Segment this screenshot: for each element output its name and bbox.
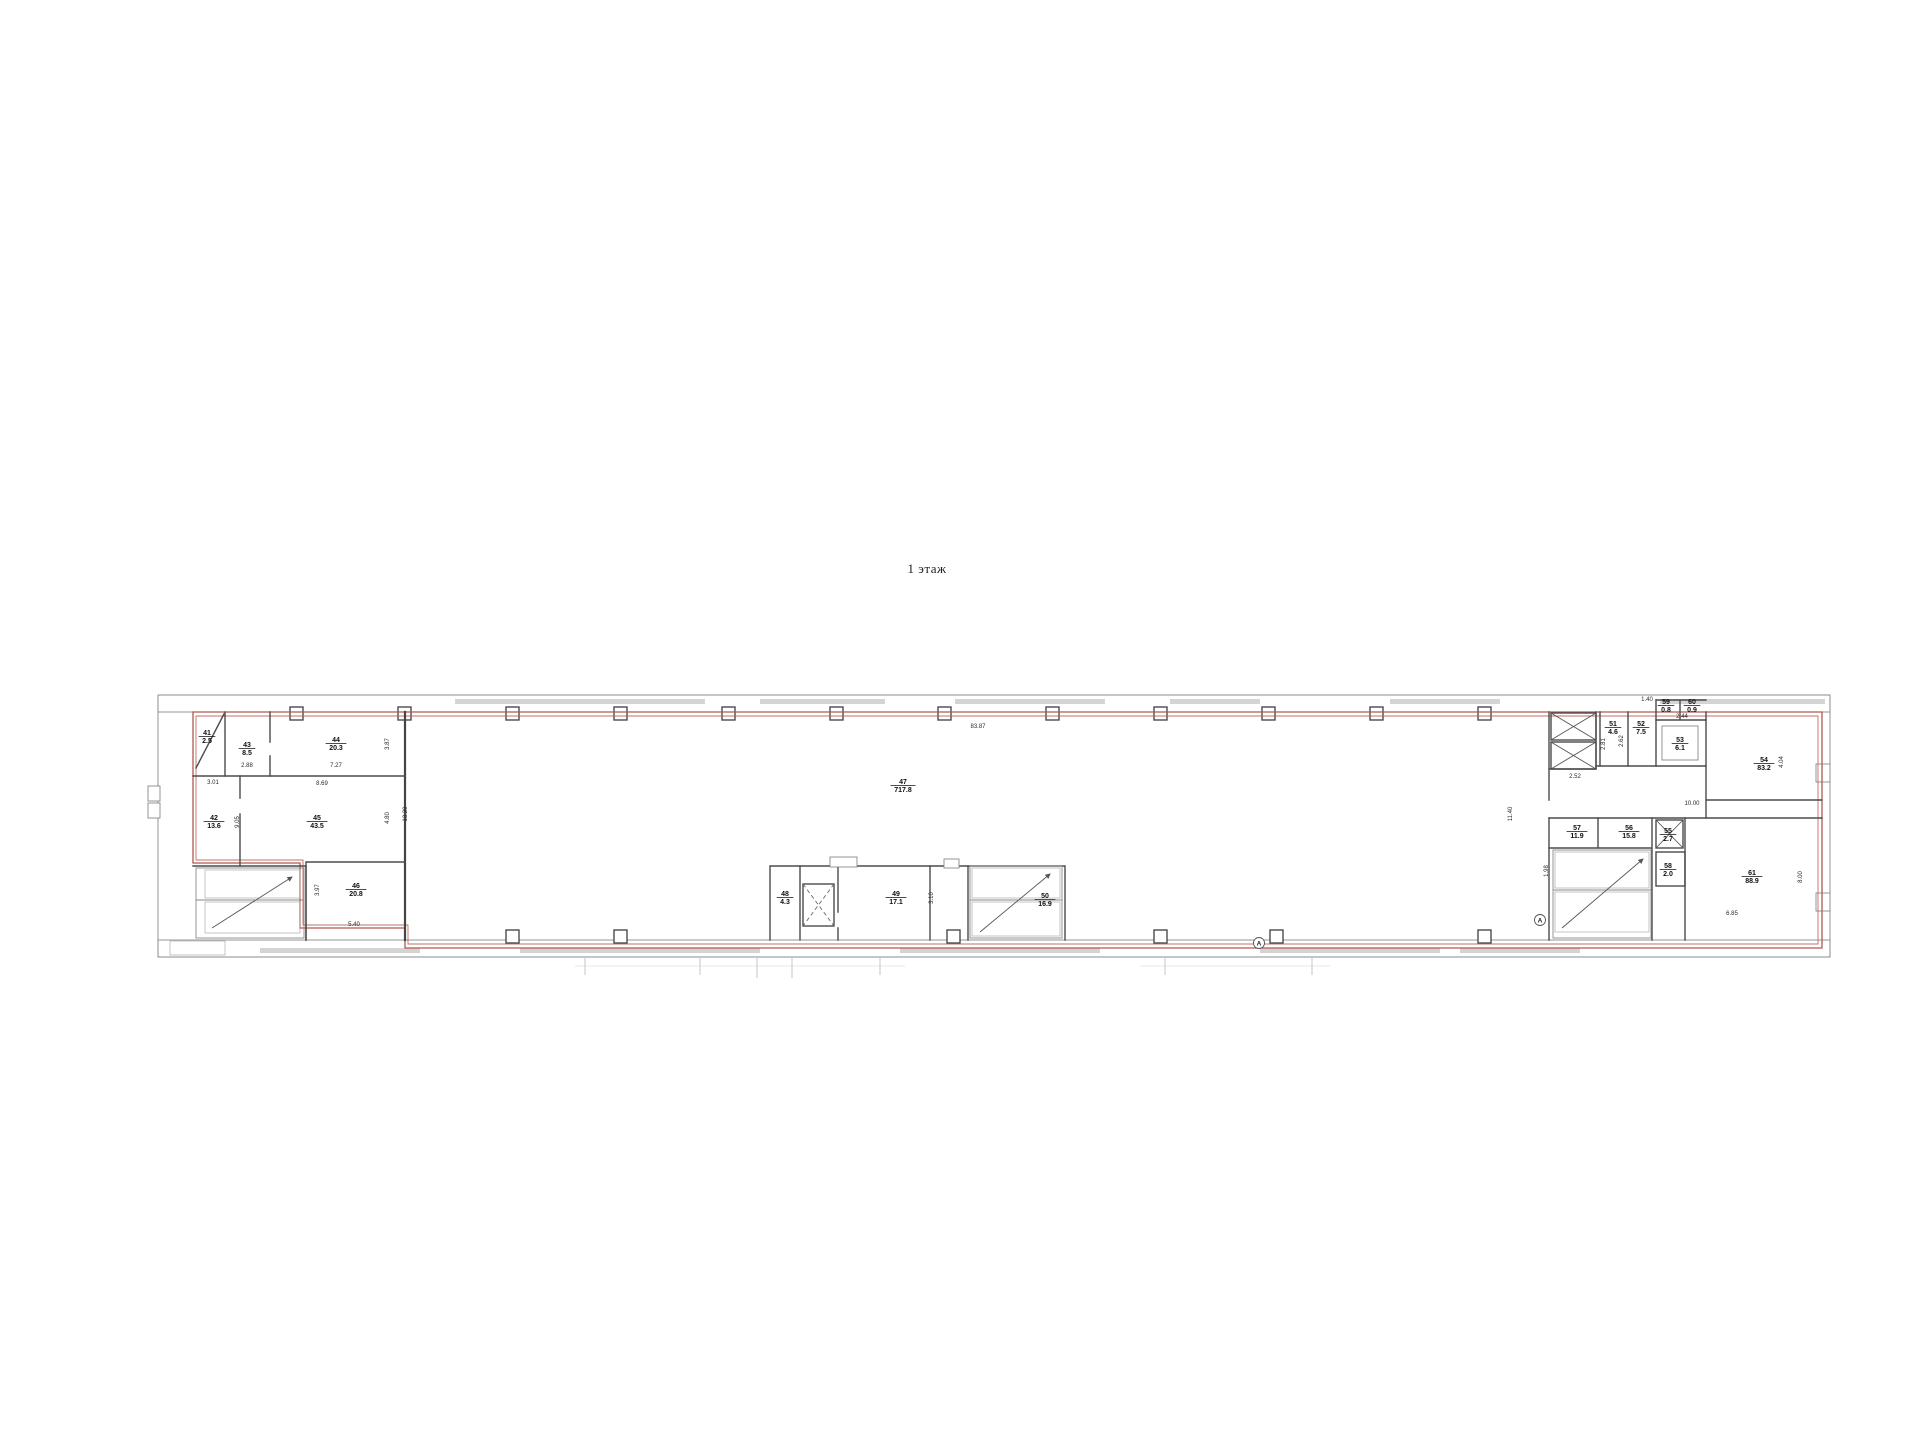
room-area: 0.8 [1661,707,1671,714]
dimension-label: 4.80 [385,812,391,824]
dimension-label: 3.87 [385,738,391,750]
left-section-walls [170,712,405,955]
room-label-50: 5016.9 [1035,893,1056,908]
room-number: 48 [781,891,789,898]
dimension-label: 2.88 [241,763,253,769]
room-label-52: 527.5 [1633,721,1650,736]
dimension-label: 11.40 [1508,806,1514,821]
dimension-label: 3.97 [315,884,321,896]
dimension-label: 6.85 [1726,911,1738,917]
axis-mark: А [1254,938,1265,949]
room-area: 13.6 [207,823,221,830]
room-label-53: 536.1 [1672,737,1689,752]
room-area: 2.7 [1663,836,1673,843]
room-area: 8.5 [242,750,252,757]
dimension-label: 7.27 [330,763,342,769]
room-number: 54 [1760,757,1768,764]
room-label-56: 5615.8 [1619,825,1640,840]
exterior-steps [170,941,225,955]
room-area: 20.8 [349,891,363,898]
dimension-label: 10.00 [1684,801,1700,807]
dimension-label: 2.62 [1619,735,1625,747]
window-strips [260,699,1825,953]
room-number: 41 [203,730,211,737]
room-number: 56 [1625,825,1633,832]
room-label-43: 438.5 [239,742,256,757]
dimension-label: 3.10 [929,892,935,904]
room-area: 16.9 [1038,901,1052,908]
room-label-49: 4917.1 [886,891,907,906]
labels-layer: 412.5438.54420.34213.64543.54620.847717.… [199,697,1804,949]
dimension-label: 3.01 [207,780,219,786]
room-number: 45 [313,815,321,822]
room-label-41: 412.5 [199,730,216,745]
room-number: 58 [1664,863,1672,870]
room-number: 57 [1573,825,1581,832]
room-number: 60 [1688,699,1696,706]
room-area: 717.8 [894,787,912,794]
drawing-page: 1 этаж [0,0,1920,1440]
room-number: 55 [1664,828,1672,835]
room-area: 7.5 [1636,729,1646,736]
room-area: 17.1 [889,899,903,906]
room-area: 4.6 [1608,729,1618,736]
room-area: 6.1 [1675,745,1685,752]
room-label-61: 6188.9 [1742,870,1763,885]
center-core-walls [770,857,1065,940]
stairs-left [196,868,304,938]
room-area: 20.3 [329,745,343,752]
room-area: 88.9 [1745,878,1759,885]
room-label-55: 552.7 [1660,828,1677,843]
room-number: 47 [899,779,907,786]
room-number: 46 [352,883,360,890]
room-label-54: 5483.2 [1754,757,1775,772]
room-area: 0.9 [1687,707,1697,714]
room-label-57: 5711.9 [1567,825,1588,840]
room-area: 43.5 [310,823,324,830]
dimension-label: 1.98 [1544,865,1550,877]
dimension-label: 83.87 [970,724,986,730]
room-number: 43 [243,742,251,749]
room-number: 42 [210,815,218,822]
room-number: 44 [332,737,340,744]
room-area: 2.0 [1663,871,1673,878]
floor-plan: 412.5438.54420.34213.64543.54620.847717.… [0,0,1920,1440]
room-label-46: 4620.8 [346,883,367,898]
dimension-label: 2.52 [1569,774,1581,780]
room-area: 15.8 [1622,833,1636,840]
dimension-label: 8.00 [1798,871,1804,883]
right-section-walls [1549,700,1822,940]
room-number: 51 [1609,721,1617,728]
dimension-label: 8.69 [316,781,328,787]
room-area: 83.2 [1757,765,1771,772]
dimension-label: 5.40 [348,922,360,928]
axis-mark: А [1535,915,1546,926]
dimension-label: 9.05 [235,816,241,828]
room-area: 2.5 [202,738,212,745]
survey-ticks [575,958,1330,978]
room-number: 50 [1041,893,1049,900]
room-area: 11.9 [1570,833,1583,840]
stairs-right [1553,850,1651,938]
room-area: 4.3 [780,899,790,906]
room-number: 53 [1676,737,1684,744]
dimension-label: 4.04 [1779,756,1785,768]
dimension-label: 2.81 [1601,738,1607,750]
room-label-42: 4213.6 [204,815,225,830]
room-label-48: 484.3 [777,891,794,906]
room-number: 59 [1662,699,1670,706]
room-label-58: 582.0 [1660,863,1677,878]
room-number: 52 [1637,721,1645,728]
room-label-44: 4420.3 [326,737,347,752]
dimension-label: 1.40 [1641,697,1653,703]
dimension-label: 2.44 [1676,714,1688,720]
room-label-51: 514.6 [1605,721,1622,736]
column-grid [290,707,1491,943]
room-label-45: 4543.5 [307,815,328,830]
axis-mark-letter: А [1257,941,1262,948]
room-number: 61 [1748,870,1756,877]
room-label-47: 47717.8 [891,779,916,794]
axis-mark-letter: А [1538,918,1543,925]
room-number: 49 [892,891,900,898]
dimension-label: 13.20 [403,806,409,822]
